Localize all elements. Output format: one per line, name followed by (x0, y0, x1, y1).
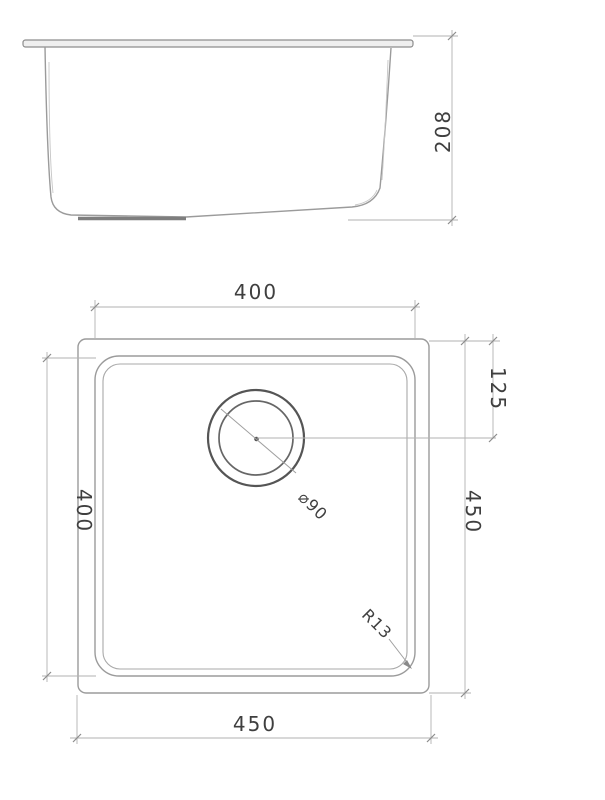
bottom-width-label: 450 (233, 712, 277, 736)
left-height-label: 400 (72, 489, 96, 533)
drain-offset-label: 125 (486, 367, 510, 411)
sink-technical-drawing: 208 ⌀90 R13 (0, 0, 605, 800)
drain-offset-dimension: 125 (257, 334, 510, 442)
drain-diameter-leader (221, 409, 296, 473)
depth-dimension: 208 (348, 30, 458, 226)
side-view-flange (23, 40, 413, 47)
side-view-inner-wall-right (382, 60, 388, 180)
side-view-body (45, 47, 391, 217)
bottom-width-dimension: 450 (70, 695, 438, 744)
plan-bowl-inner-rect (103, 364, 407, 669)
plan-view: ⌀90 R13 400 (42, 280, 510, 744)
side-view: 208 (23, 30, 458, 226)
left-height-dimension: 400 (42, 352, 96, 682)
top-width-dimension: 400 (90, 280, 420, 340)
corner-radius-callout: R13 (358, 605, 412, 669)
drain: ⌀90 (208, 390, 331, 524)
top-width-label: 400 (234, 280, 278, 304)
plan-bowl-rim-rect (95, 356, 415, 676)
plan-outer-rect (78, 339, 429, 693)
drawing-canvas: 208 ⌀90 R13 (0, 0, 605, 800)
depth-dimension-label: 208 (431, 109, 455, 153)
right-height-label: 450 (461, 490, 485, 534)
corner-radius-label: R13 (358, 605, 396, 643)
drain-diameter-label: ⌀90 (295, 488, 332, 525)
